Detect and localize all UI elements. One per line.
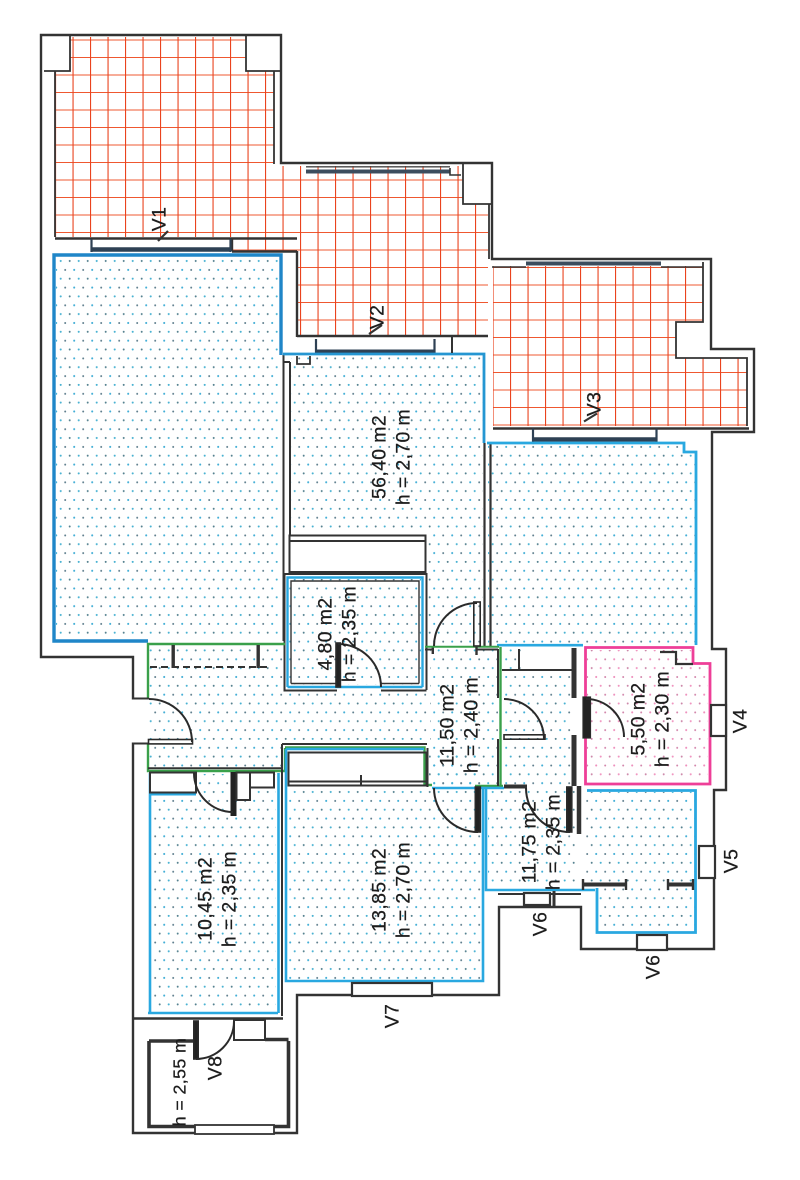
svg-text:V2: V2	[367, 305, 389, 330]
svg-text:11,75 m2: 11,75 m2	[519, 801, 541, 884]
svg-text:h = 2,30 m: h = 2,30 m	[652, 671, 674, 767]
svg-text:V7: V7	[382, 1004, 404, 1029]
svg-text:V6: V6	[530, 912, 552, 937]
svg-text:h = 2,55 m: h = 2,55 m	[170, 1038, 190, 1127]
svg-text:13,85 m2: 13,85 m2	[369, 848, 391, 932]
svg-text:56,40 m2: 56,40 m2	[369, 415, 391, 499]
svg-text:4,80 m2: 4,80 m2	[315, 598, 337, 671]
svg-text:V6: V6	[643, 955, 665, 980]
svg-text:10,45 m2: 10,45 m2	[195, 857, 217, 941]
svg-text:V3: V3	[584, 392, 606, 417]
svg-text:h = 2,40 m: h = 2,40 m	[461, 677, 483, 773]
svg-text:h = 2,70 m: h = 2,70 m	[393, 409, 415, 505]
svg-text:h = 2,35 m: h = 2,35 m	[219, 851, 241, 947]
svg-text:h = 2,35 m: h = 2,35 m	[339, 586, 361, 682]
svg-text:h = 2,70 m: h = 2,70 m	[393, 842, 415, 938]
svg-text:V8: V8	[205, 1056, 227, 1081]
svg-text:5,50 m2: 5,50 m2	[628, 683, 650, 756]
svg-text:h = 2,35 m: h = 2,35 m	[543, 794, 565, 890]
svg-text:11,50 m2: 11,50 m2	[437, 684, 459, 767]
svg-text:V1: V1	[149, 207, 171, 232]
svg-text:V5: V5	[721, 849, 743, 874]
svg-text:V4: V4	[730, 709, 752, 734]
